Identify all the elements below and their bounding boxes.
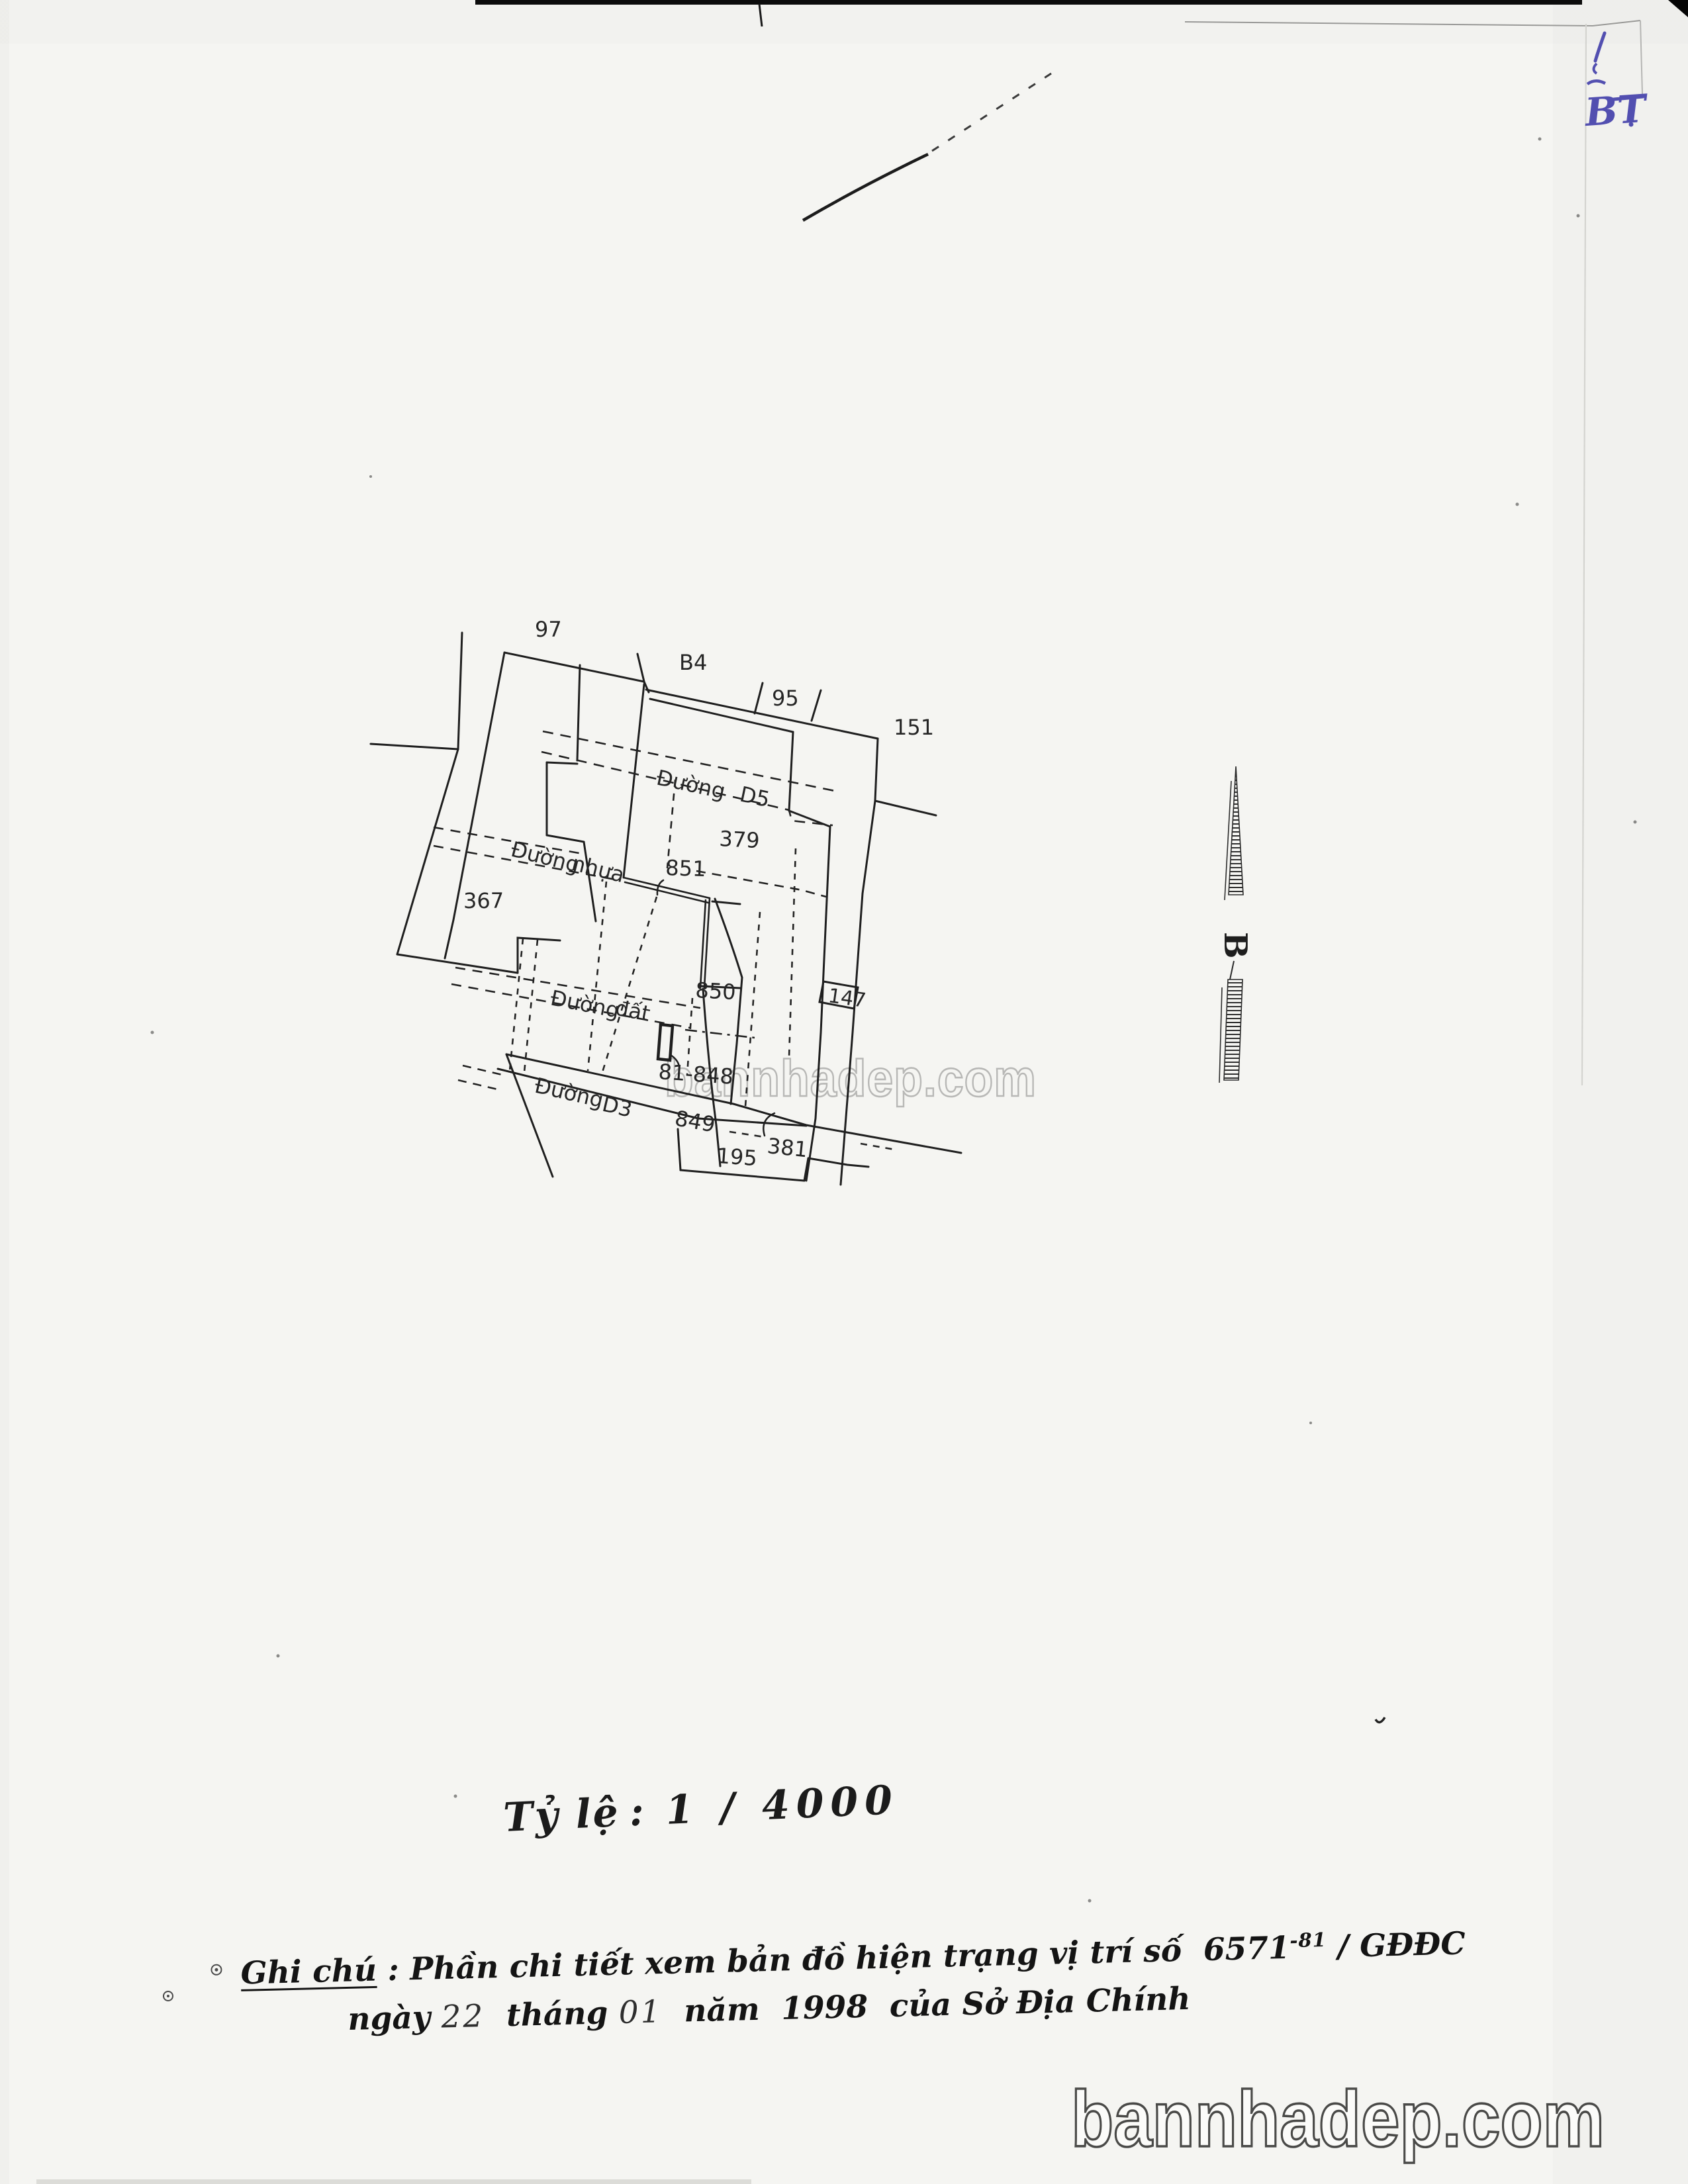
scan-fold-line xyxy=(1582,24,1586,1085)
parcel-divider xyxy=(547,835,584,842)
boundary-line xyxy=(371,744,458,749)
handwriting-period xyxy=(1629,122,1634,127)
boundary-line xyxy=(789,811,830,827)
parcel-label-81-848: 81-848 xyxy=(657,1059,734,1089)
ink-check-mark xyxy=(1376,1717,1385,1722)
scan-corner-wedge xyxy=(1668,0,1688,17)
note-heading: Ghi chú xyxy=(240,1952,377,1992)
north-arrow-connector xyxy=(1230,961,1234,979)
road-label-d3: Đường D3 xyxy=(532,1073,634,1122)
boundary-line xyxy=(789,732,793,811)
block-top-edge-outer xyxy=(646,690,878,739)
note-colon: : xyxy=(387,1952,400,1988)
note-month-handwritten: 01 xyxy=(618,1993,663,2031)
boundary-line xyxy=(458,633,462,749)
note-doc-number: 6571 xyxy=(1203,1930,1290,1968)
lane-dashed xyxy=(524,940,538,1072)
road-label-d3-word2: D3 xyxy=(600,1091,634,1122)
scan-bottom-smear xyxy=(36,2179,751,2184)
note-tail: của Sở Địa Chính xyxy=(889,1981,1191,2025)
survey-tick xyxy=(812,690,821,721)
north-arrow: B xyxy=(1217,766,1254,1083)
parcel-label-b4: B4 xyxy=(679,650,707,675)
note-doc-tail: / GĐĐC xyxy=(1337,1925,1466,1965)
scan-hairline xyxy=(1185,21,1640,26)
scanned-document-page: bannhadep.com xyxy=(0,0,1688,2184)
parcel-195-divider xyxy=(678,1129,680,1170)
road-label-d5-word1: Đường xyxy=(654,765,727,804)
scale-separator: : xyxy=(628,1788,647,1835)
handwriting-tilde-stroke xyxy=(1587,81,1605,84)
handwriting-text: BT xyxy=(1582,85,1650,135)
lane-dashed xyxy=(588,882,606,1071)
lane-dashed xyxy=(510,938,523,1071)
note-doc-superscript: -81 xyxy=(1289,1929,1327,1952)
handwriting-hook-stroke xyxy=(1594,64,1597,73)
boundary-line xyxy=(397,954,518,973)
road-label-d5-word2: D5 xyxy=(737,782,772,813)
survey-tick xyxy=(755,683,763,713)
parcel-divider xyxy=(577,665,580,760)
scale-label: Tỷ lệ xyxy=(502,1790,621,1841)
parcel-195-dashed xyxy=(729,1132,765,1137)
note-bullet-icon xyxy=(211,1964,222,1975)
road-label-d3-word1: Đường xyxy=(532,1073,606,1113)
note-year: 1998 xyxy=(781,1988,868,2026)
scratch-line-dotted xyxy=(932,73,1051,151)
road-label-nhua-word2: nhựa xyxy=(569,850,627,887)
north-arrow-shaft-icon xyxy=(1224,979,1243,1080)
road-851-edge xyxy=(625,882,708,903)
note-word-nam: năm xyxy=(684,1991,761,2029)
lane-dashed xyxy=(602,897,657,1072)
scan-top-edge xyxy=(475,0,1582,5)
parcel-divider xyxy=(547,762,577,764)
boundary-line xyxy=(875,739,878,801)
note-marker-icon xyxy=(164,1991,173,2001)
parcel-379-bottom-dashed xyxy=(696,871,826,897)
parcel-label-850: 850 xyxy=(695,978,737,1005)
boundary-step xyxy=(518,938,560,973)
north-arrow-shaft-guide xyxy=(1219,987,1222,1083)
watermark-bottom: bannhadep.com xyxy=(1071,2075,1605,2163)
lane-dashed xyxy=(789,848,796,1058)
block-top-edge xyxy=(504,653,644,682)
parcel-195-east xyxy=(808,1158,868,1167)
parcel-label-97: 97 xyxy=(535,617,562,642)
parcel-label-381: 381 xyxy=(766,1133,809,1162)
note-word-thang: tháng xyxy=(506,1995,608,2034)
note-word-ngay: ngày xyxy=(348,1999,431,2038)
parcel-label-851: 851 xyxy=(665,855,706,882)
road-label-dat-word1: Đường xyxy=(548,985,622,1023)
document-artwork: bannhadep.com xyxy=(0,0,1688,2184)
boundary-line xyxy=(397,749,458,954)
boundary-line xyxy=(875,801,936,815)
parcel-label-195: 195 xyxy=(716,1143,758,1171)
scan-top-tick xyxy=(759,4,762,26)
parcel-label-379: 379 xyxy=(719,826,761,853)
north-letter: B xyxy=(1217,932,1254,959)
parcel-381-dashed xyxy=(861,1144,895,1150)
road-label-nhua: Đường nhựa xyxy=(508,837,627,887)
parcel-label-849: 849 xyxy=(673,1105,718,1137)
handwritten-annotation: BT xyxy=(1582,33,1650,135)
parcel-label-95: 95 xyxy=(772,686,799,711)
scratch-line-solid xyxy=(803,154,928,220)
parcel-label-151: 151 xyxy=(894,715,934,740)
road-d3-dashed-extension xyxy=(458,1080,500,1090)
parcel-label-147: 147 xyxy=(827,984,868,1013)
road-d3-dashed-extension xyxy=(463,1066,505,1075)
road-label-d5: Đường D5 xyxy=(654,765,772,813)
paper-specks xyxy=(151,138,1637,1903)
parcel-divider xyxy=(624,684,644,878)
scan-hairline-vertical-short xyxy=(1640,21,1642,94)
parcel-label-367: 367 xyxy=(463,888,504,913)
handwriting-slash-stroke xyxy=(1595,33,1605,61)
note-day-handwritten: 22 xyxy=(441,1998,485,2036)
dash-dot-line xyxy=(685,1030,755,1038)
parcel-195-bottom xyxy=(680,1170,804,1181)
